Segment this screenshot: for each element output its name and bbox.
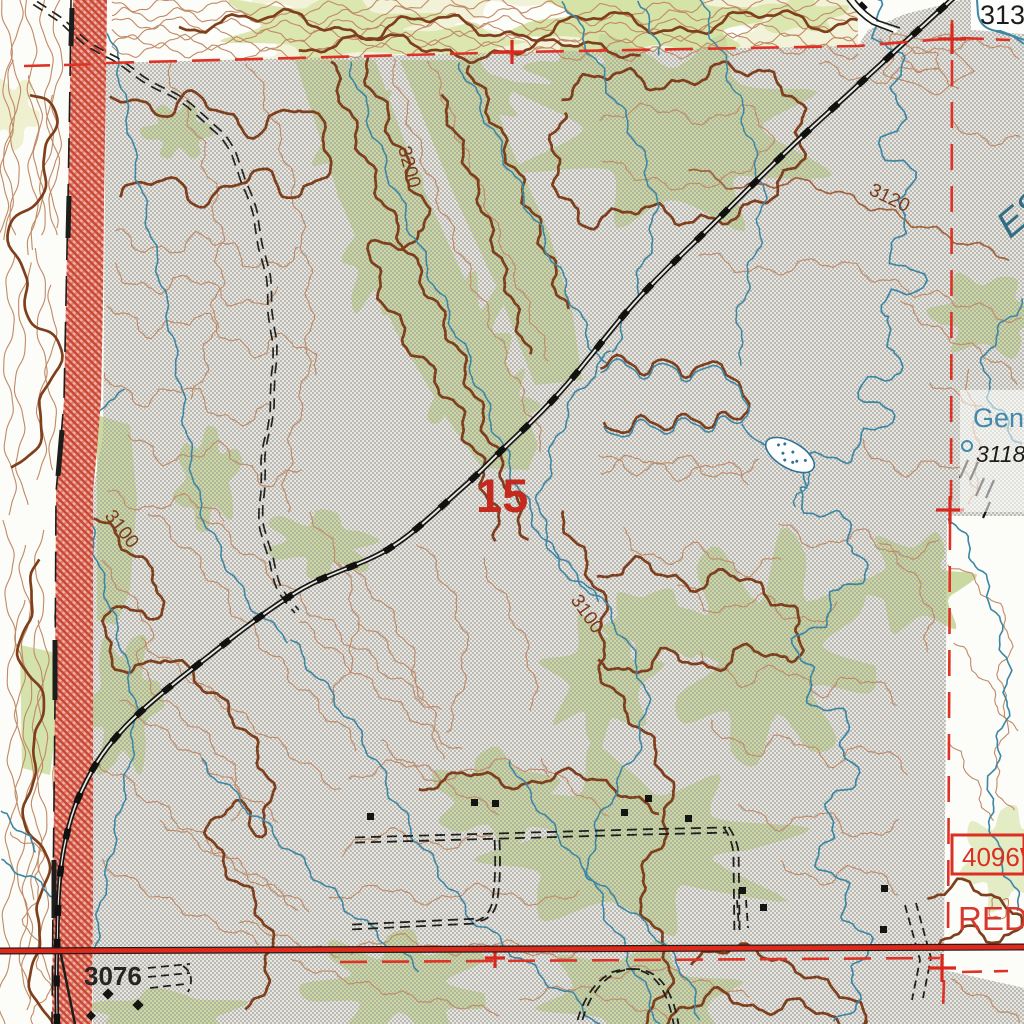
svg-text:Gen: Gen [973, 403, 1024, 433]
svg-text:313: 313 [980, 0, 1024, 30]
svg-text:3118: 3118 [976, 441, 1024, 467]
svg-text:15: 15 [476, 469, 528, 522]
svg-text:3076: 3076 [84, 961, 142, 991]
svg-text:RED: RED [958, 900, 1024, 937]
svg-text:4096W: 4096W [962, 842, 1024, 872]
